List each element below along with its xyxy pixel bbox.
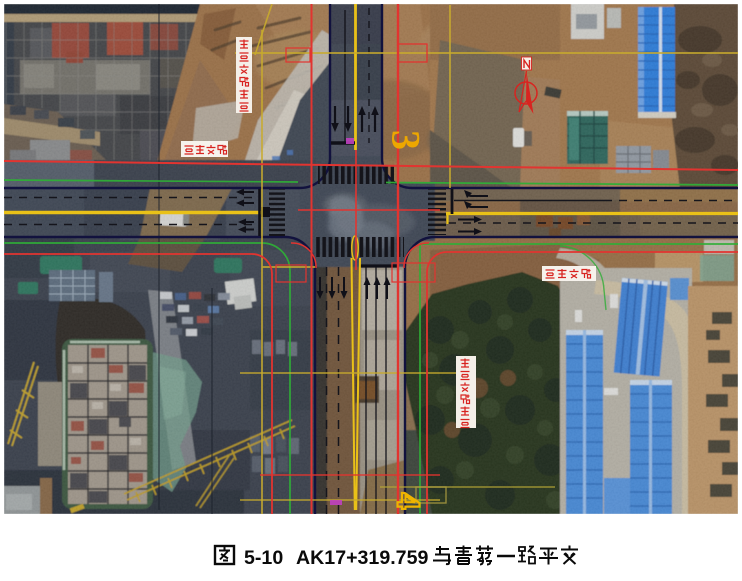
svg-text:AK17+319.759: AK17+319.759 [296,547,428,569]
svg-text:3: 3 [384,130,429,150]
svg-text:5-10: 5-10 [244,547,283,569]
svg-text:4: 4 [390,493,427,510]
